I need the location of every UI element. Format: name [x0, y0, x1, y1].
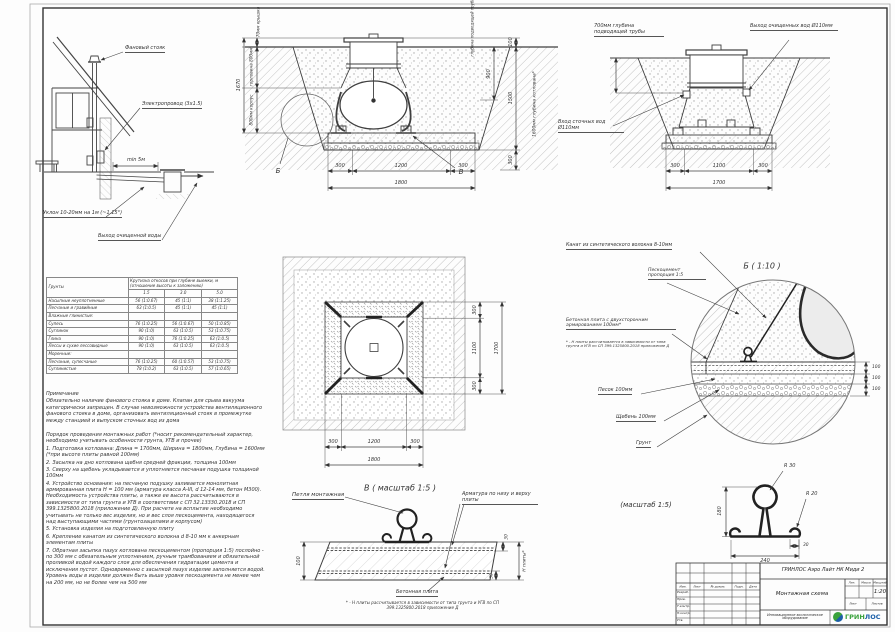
logo-text-green: ГРИН	[845, 613, 865, 621]
detail-v-caption: В ( масштаб 1:5 )	[364, 483, 436, 492]
detail-v-dim-100: 100	[297, 556, 303, 566]
loop-r20-label: R 20	[806, 492, 817, 498]
title-sheets-label: Листов	[871, 602, 882, 605]
title-lit-label: Лит.	[849, 581, 856, 584]
title-row-tcontrol: Т.контр.	[677, 605, 690, 608]
soil-val: 78 (1:0.2)	[128, 366, 165, 374]
installation-notes: Примечание Обязательно наличие фанового …	[46, 391, 265, 587]
soil-name: Суглинок	[47, 328, 129, 336]
dim-100: 100	[509, 37, 515, 47]
sand-label: Песок 100мм	[598, 388, 632, 395]
notes-paragraph: Обязательно наличие фанового стояка в до…	[46, 398, 265, 424]
table-row: Песчаные, супесчаные76 (1:0.25)60 (1:0.5…	[47, 358, 238, 366]
title-mass-label: Масса	[861, 581, 871, 584]
soil-val: 63 (1:0.5)	[202, 343, 238, 351]
dim-300-right: 300	[509, 155, 515, 165]
side-inlet-label: Вход сточных вод Ø110мм	[558, 120, 624, 133]
notes-item: 5. Установка изделия на подготовленную п…	[46, 526, 265, 532]
notes-item: 2. Засыпка на дно котлована щебня средне…	[46, 460, 265, 466]
soil-name: Влажные глинистые:	[47, 312, 129, 320]
soil-val: 63 (1:0.5)	[165, 366, 202, 374]
side-dim-300r: 300	[758, 164, 768, 170]
pesco-label: Пескоцемент пропорция 1:5	[648, 268, 706, 280]
side-dim-300l: 300	[670, 164, 680, 170]
plan-view-drawing	[283, 257, 506, 468]
plan-dim-b300r: 300	[410, 440, 420, 446]
soil-slope-table: Грунты Крутизна откосов при глубине выем…	[46, 277, 238, 374]
detail-b-caption: Б ( 1:10 )	[743, 261, 780, 270]
table-row: Глина90 (1:0)76 (1:0.25)63 (1:0.5)	[47, 335, 238, 343]
soil-table-col-soil: Грунты	[47, 278, 129, 298]
loop-dim-30: 30	[803, 543, 809, 548]
soil-val: 53 (1:0.75)	[202, 328, 238, 336]
detail-v-footnote: * - Н плиты рассчитывается в зависимости…	[340, 601, 505, 610]
soil-depth-3: 5.0	[202, 290, 238, 298]
soil-label: Грунт	[636, 441, 651, 448]
soil-val: 56 (1:0.67)	[128, 297, 165, 305]
title-row-checked: Пров.	[677, 598, 686, 601]
dim-b1200: 1200	[395, 164, 408, 170]
soil-val	[165, 350, 202, 358]
soil-val: 63 (1:0.5)	[128, 305, 165, 313]
dim-900: 900	[487, 69, 493, 79]
side-dim-1100: 1100	[713, 164, 726, 170]
title-col-doc: № докум.	[711, 585, 726, 588]
soil-name: Песчаные и гравийные	[47, 305, 129, 313]
notes-item: 3. Сверху на щебень укладывается и уплот…	[46, 467, 265, 480]
dim-b300l: 300	[335, 164, 345, 170]
soil-val: 90 (1:0)	[128, 335, 165, 343]
drawing-sheet: Фановый стояк Электропровод (3х1.5) min …	[0, 0, 895, 632]
detail-b-dim-3: 100	[872, 387, 880, 392]
loop-profile-drawing	[722, 471, 806, 559]
dim-lid-70: 70мм крышка	[257, 7, 262, 37]
table-row: Моренные:	[47, 350, 238, 358]
soil-name: Супесь	[47, 320, 129, 328]
rope-label: Канат из синтетического волокна 8-10мм	[566, 243, 672, 250]
title-row-approved: Утв.	[677, 619, 683, 622]
soil-table-col-main: Крутизна откосов при глубине выемки, м (…	[128, 278, 237, 290]
side-dim-1700: 1700	[713, 181, 726, 187]
title-col-list: Лист	[693, 585, 701, 588]
soil-name: Насыпные неуплотненные	[47, 297, 129, 305]
pit-depth-label: 1600мм глубина котлована*	[532, 71, 537, 137]
table-row: Влажные глинистые:	[47, 312, 238, 320]
company-slogan: Инновационное экологическое оборудование	[763, 614, 827, 622]
plan-dim-b300l: 300	[328, 440, 338, 446]
soil-name: Суглинистые	[47, 366, 129, 374]
notes-item: 1. Подготовка котлована: Длина = 1700мм,…	[46, 446, 265, 459]
loop-dim-180: 180	[718, 506, 724, 516]
logo-globe-icon	[833, 612, 843, 622]
title-col-sign: Подп.	[734, 585, 743, 588]
soil-val: 76 (1:0.25)	[165, 335, 202, 343]
detail-b-drawing	[641, 252, 870, 447]
soil-val: 60 (1:0.57)	[165, 358, 202, 366]
soil-val	[202, 312, 238, 320]
soil-val: 63 (1:0.5)	[165, 328, 202, 336]
soil-val: 56 (1:0.67)	[165, 320, 202, 328]
dim-neck-800: горловина 800мм	[250, 48, 255, 87]
dim-1500: 1500	[509, 92, 515, 105]
concrete-slab-label: Бетонная плита	[396, 590, 438, 597]
title-doc-name: Монтажная схема	[776, 591, 828, 597]
soil-val: 90 (1:0)	[128, 343, 165, 351]
soil-val: 38 (1:1.25)	[202, 297, 238, 305]
title-scale-value: 1:20	[874, 589, 886, 595]
table-row: Лессы и сухие лессовидные90 (1:0)63 (1:0…	[47, 343, 238, 351]
plan-dim-1700: 1700	[495, 342, 501, 355]
title-row-developed: Разраб.	[677, 591, 689, 594]
soil-val	[202, 350, 238, 358]
detail-b-footnote: * - Н плиты рассчитывается в зависимости…	[566, 340, 678, 349]
electric-label: Электропровод (3х1.5)	[142, 102, 202, 109]
plan-dim-b1200: 1200	[368, 440, 381, 446]
notes-title: Примечание	[46, 391, 265, 397]
mounting-loop-label: Петля монтажная	[292, 492, 344, 500]
title-row-ncontrol: Н.контр.	[677, 612, 690, 615]
dim-1670: 1670	[237, 79, 243, 92]
company-logo: ГРИНЛОС	[833, 612, 881, 622]
clean-water-outlet-label: Выход очищенной воды	[98, 234, 161, 241]
plan-dim-300t: 300	[473, 305, 479, 315]
slope-label: Уклон 10-20мм на 1м (~1.15°)	[43, 211, 122, 218]
detail-b-dim-2: 100	[872, 376, 880, 381]
soil-val: 90 (1:0)	[128, 328, 165, 336]
soil-val: 76 (1:0.25)	[128, 358, 165, 366]
title-sheet-label: Лист	[849, 602, 857, 605]
plan-dim-1100: 1100	[473, 342, 479, 355]
soil-val: 63 (1:0.5)	[202, 335, 238, 343]
table-row: Суглинистые78 (1:0.2)63 (1:0.5)57 (1:0.6…	[47, 366, 238, 374]
side-outlet-label: Выход очищенных вод Ø110мм	[750, 24, 838, 31]
loop-detail-caption: (масштаб 1:5)	[620, 501, 671, 509]
soil-name: Моренные:	[47, 350, 129, 358]
dim-body-800: 800мм корпус	[250, 95, 255, 126]
table-row: Суглинок90 (1:0)63 (1:0.5)53 (1:0.75)	[47, 328, 238, 336]
detail-v-dim-30t: 30	[504, 534, 509, 540]
logo-text-blue: ЛОС	[865, 613, 881, 621]
soil-name: Глина	[47, 335, 129, 343]
soil-val	[165, 312, 202, 320]
soil-depth-1: 1.5	[128, 290, 165, 298]
soil-name: Лессы и сухие лессовидные	[47, 343, 129, 351]
gravel-label: Щебень 100мм	[616, 415, 656, 422]
notes-item: 6. Крепление канатом из синтетического в…	[46, 534, 265, 547]
soil-val	[128, 312, 165, 320]
notes-item: 7. Обратная засыпка пазух котлована песк…	[46, 548, 265, 586]
soil-val: 76 (1:0.25)	[128, 320, 165, 328]
soil-val: 45 (1:1)	[165, 297, 202, 305]
soil-val: 50 (1:0.85)	[202, 320, 238, 328]
table-row: Насыпные неуплотненные56 (1:0.67)45 (1:1…	[47, 297, 238, 305]
soil-val: 53 (1:0.75)	[202, 358, 238, 366]
detail-v-dim-30b: 30	[489, 573, 494, 579]
title-product: ГРИНЛОС Аэро Лайт НК Миди 2	[782, 568, 865, 574]
soil-val: 45 (1:1)	[202, 305, 238, 313]
loop-r30-label: R 30	[784, 464, 795, 470]
soil-val	[128, 350, 165, 358]
table-row: Супесь76 (1:0.25)56 (1:0.67)50 (1:0.85)	[47, 320, 238, 328]
title-scale-label: Масштаб	[873, 581, 886, 584]
side-pipe-depth-label: 700мм глубина подводящей трубы	[594, 24, 664, 37]
dim-b1800: 1800	[395, 181, 408, 187]
soil-val: 57 (1:0.65)	[202, 366, 238, 374]
notes-item: 4. Устройство основания: на песчаную под…	[46, 481, 265, 526]
table-row: Песчаные и гравийные63 (1:0.5)45 (1:1)45…	[47, 305, 238, 313]
detail-v-dim-h: Н плиты*	[522, 550, 527, 571]
slab-reinforced-label: Бетонная плита с двухсторонним армирован…	[566, 318, 676, 330]
soil-name: Песчаные, супесчаные	[47, 358, 129, 366]
soil-depth-2: 3.0	[165, 290, 202, 298]
plan-dim-b1800: 1800	[368, 458, 381, 464]
soil-val: 63 (1:0.5)	[165, 343, 202, 351]
vent-stack-label: Фановый стояк	[125, 46, 165, 53]
title-col-date: Дата	[749, 585, 757, 588]
detail-letter-v: В	[459, 168, 464, 176]
inlet-pipe-depth-label: глубина подводящей трубы	[471, 0, 476, 57]
notes-order-title: Порядок проведения монтажных работ (*нос…	[46, 432, 265, 445]
detail-letter-b: Б	[276, 167, 281, 175]
loop-dim-240: 240	[760, 559, 770, 565]
rebar-label: Арматура по низу и верху плиты	[462, 492, 538, 505]
soil-val: 45 (1:1)	[165, 305, 202, 313]
plan-dim-300b: 300	[473, 381, 479, 391]
min-distance-label: min 5м	[127, 158, 145, 164]
detail-b-dim-1: 100	[872, 365, 880, 370]
title-col-izm: Изм.	[679, 585, 686, 588]
